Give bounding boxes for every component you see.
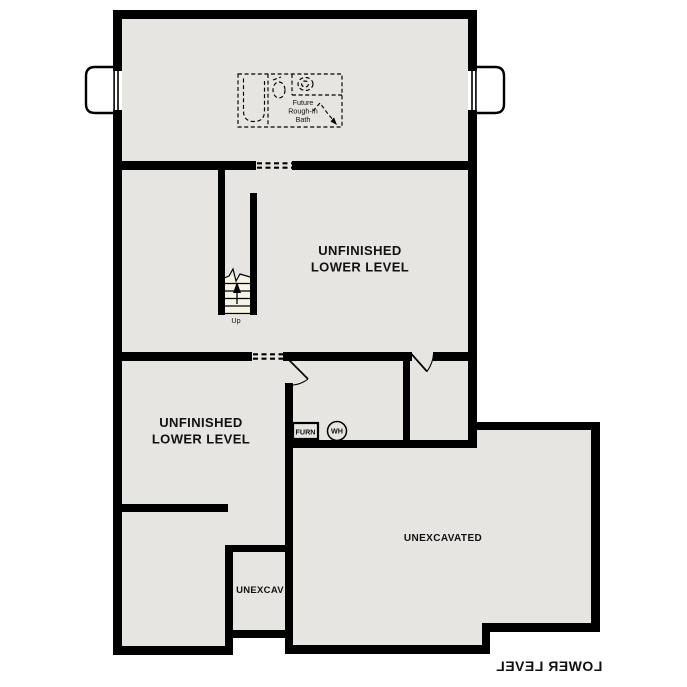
lower-left-floor-area2	[113, 545, 233, 655]
wall-stair-right	[250, 193, 257, 315]
lower-left-floor-area	[113, 448, 293, 545]
wall-divider1-left	[113, 161, 256, 170]
left-window-glazing-inner	[117, 71, 119, 110]
wall-divider2-left	[113, 352, 252, 361]
left-window-well-icon	[86, 67, 117, 113]
floor-areas	[113, 10, 600, 655]
wall-divider2-mid	[283, 352, 412, 361]
wall-stair-left	[218, 165, 225, 315]
wall-unexcav-top	[225, 545, 293, 552]
right-window-glazing-inner	[471, 71, 473, 110]
wall-divider2-right	[433, 352, 477, 361]
wall-mechanical-bottom	[285, 440, 472, 448]
sheet-title: LOWER LEVEL	[496, 658, 603, 674]
bath-label-line3: Bath	[296, 115, 311, 124]
unexcavated-label: UNEXCAVATED	[404, 533, 482, 544]
wall-top	[113, 10, 477, 19]
sheet-title-group: LOWER LEVEL	[496, 658, 603, 674]
wall-lower-left-bottom	[113, 646, 233, 655]
wall-unexcav-left	[225, 545, 233, 655]
floor-plan-page: Up Future Rough-In Bath FURN WH UNFINISH…	[0, 0, 687, 687]
lower-left-room-label-line2: LOWER LEVEL	[152, 432, 250, 447]
wall-partial-interior	[113, 504, 228, 512]
floor-plan-drawing: Up Future Rough-In Bath FURN WH UNFINISH…	[0, 0, 687, 687]
wall-unexcavated-right	[591, 422, 600, 632]
middle-room-label-line2: LOWER LEVEL	[311, 260, 409, 275]
middle-room-label-line1: UNFINISHED	[318, 243, 401, 258]
wall-room-divider	[403, 361, 410, 448]
wall-unexcavated-bottom-left	[285, 645, 490, 654]
left-window-glazing-outer	[113, 71, 115, 110]
main-floor-area	[113, 10, 477, 448]
wall-mechanical-left	[285, 383, 293, 654]
right-window-glazing-outer	[475, 71, 477, 110]
right-window-well-icon	[473, 67, 504, 113]
wall-unexcavated-top	[468, 422, 600, 430]
lower-left-room-label-line1: UNFINISHED	[159, 415, 242, 430]
water-heater-label: WH	[331, 427, 343, 436]
stair-direction-label: Up	[231, 316, 240, 325]
wall-divider1-right	[292, 161, 477, 170]
unexcav-label: UNEXCAV	[236, 585, 284, 596]
wall-unexcavated-bottom-right	[482, 623, 600, 632]
furnace-label: FURN	[296, 428, 316, 437]
wall-unexcav-bottom	[225, 630, 293, 638]
